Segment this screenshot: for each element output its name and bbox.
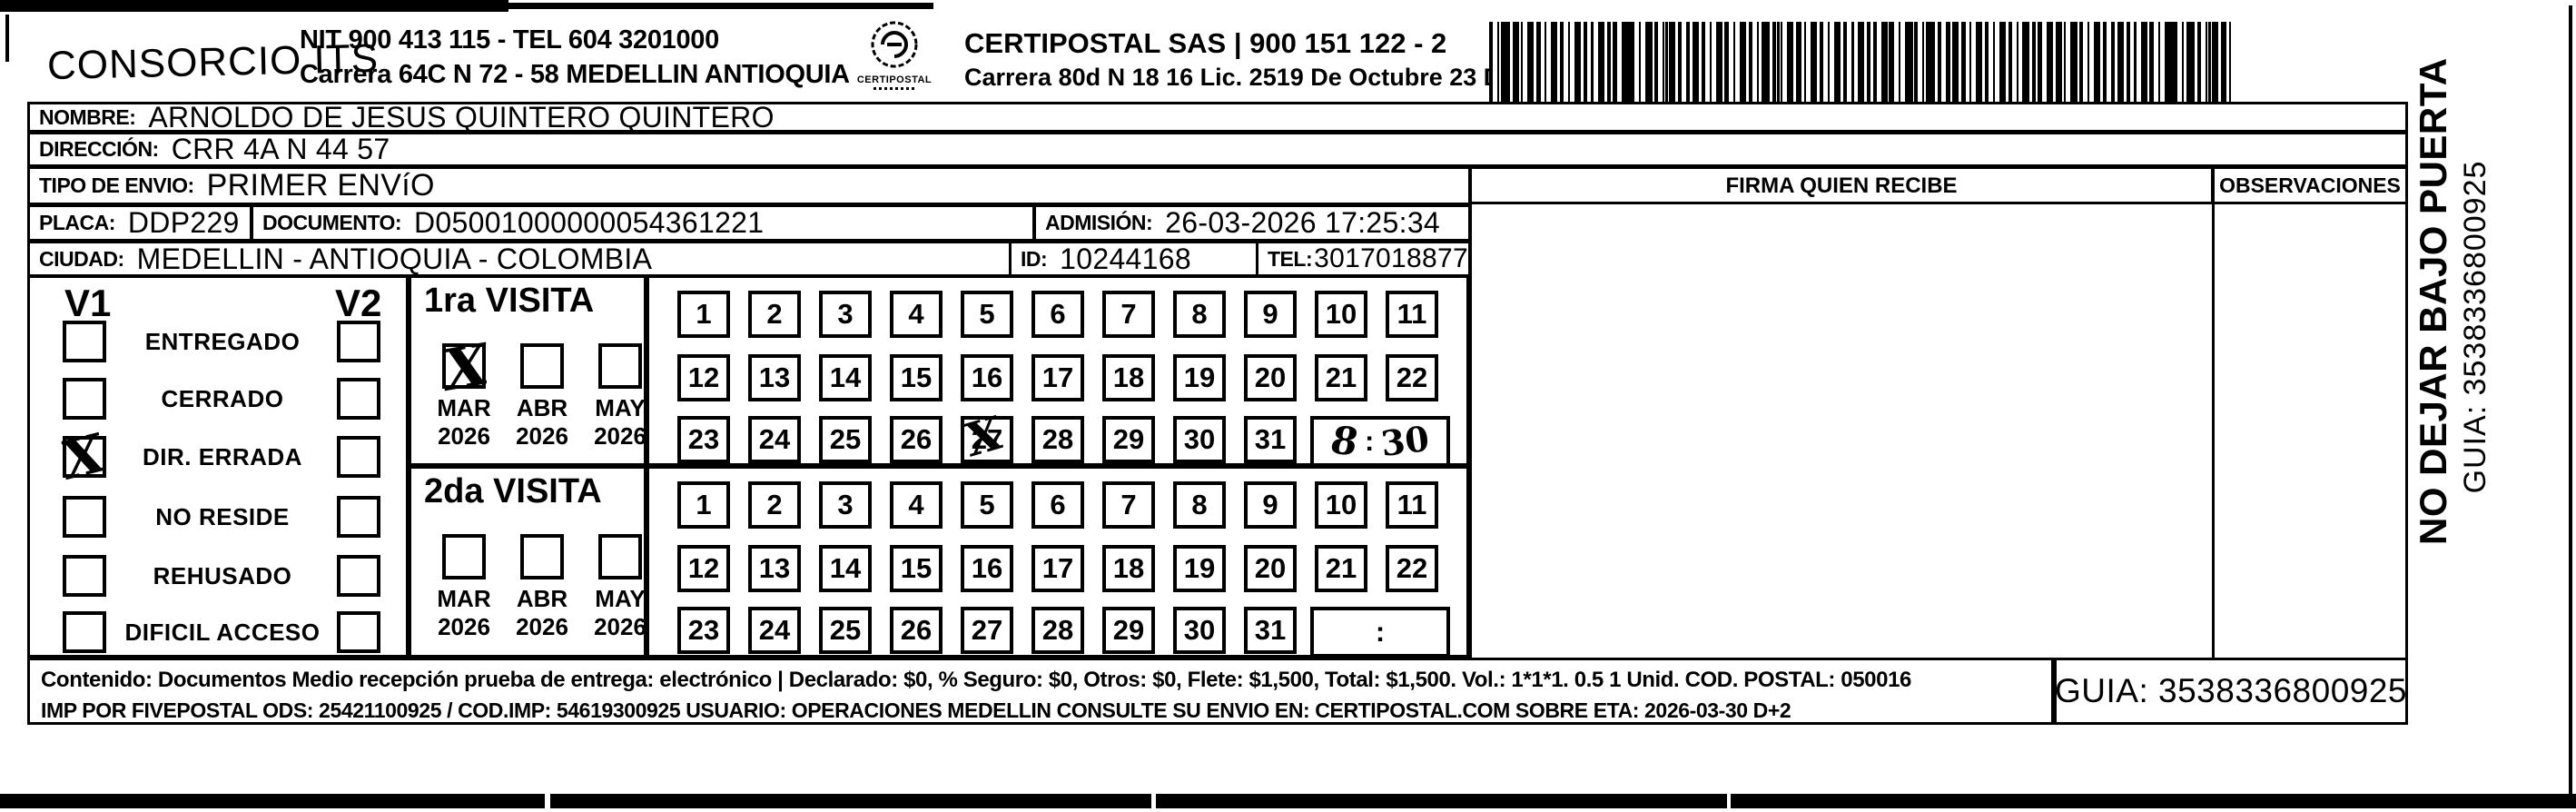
day-cell: 21	[1315, 354, 1367, 401]
logo-tagline-decoration	[873, 87, 915, 90]
visit1-calendar: 8 : 30 123456789101112131415161718192021…	[646, 275, 1469, 466]
day-cell: 7	[1102, 481, 1155, 529]
handwritten-minutes: 30	[1379, 421, 1431, 461]
visit1-title: 1ra VISITA	[424, 282, 594, 321]
v2-checkbox	[337, 378, 380, 420]
id-value: 10244168	[1060, 243, 1191, 276]
day-cell: 30	[1173, 416, 1226, 463]
admision-value: 26-03-2026 17:25:34	[1165, 206, 1440, 240]
day-cell: 8	[1173, 291, 1226, 338]
scan-artifact-gap	[1151, 794, 1156, 808]
day-cell: 17	[1031, 354, 1084, 401]
day-cell: 18	[1102, 545, 1155, 592]
day-cell: 2	[748, 291, 801, 338]
time-colon: :	[1365, 425, 1374, 458]
observaciones-header-cell: OBSERVACIONES	[2212, 166, 2408, 205]
day-cell: 12	[677, 354, 730, 401]
day-cell: 12	[677, 545, 730, 592]
ciudad-label: CIUDAD:	[39, 247, 124, 272]
month-label: ABR	[504, 585, 580, 613]
v1-checkbox	[63, 378, 106, 420]
month-checkbox	[442, 534, 486, 579]
operator-address: Carrera 80d N 18 16 Lic. 2519 De Octubre…	[964, 64, 1576, 92]
day-cell: 26	[890, 416, 943, 463]
month-label: ABR	[504, 394, 580, 422]
day-cell: 29	[1102, 416, 1155, 463]
day-cell: 22	[1386, 354, 1438, 401]
day-cell: 3	[819, 481, 872, 529]
scan-artifact-top-strip	[507, 3, 933, 9]
day-cell: 9	[1244, 291, 1297, 338]
month-checkbox	[598, 534, 642, 579]
footer-import-line: IMP POR FIVEPOSTAL ODS: 25421100925 / CO…	[41, 698, 1791, 723]
logo-caption: CERTIPOSTAL	[855, 74, 933, 85]
id-cell: ID: 10244168	[1009, 241, 1258, 277]
status-row: NO RESIDE	[30, 496, 406, 541]
side-note: NO DEJAR BAJO PUERTA GUIA: 3538336800925	[2412, 109, 2493, 545]
month-checkbox	[598, 343, 642, 389]
status-label: DIFICIL ACCESO	[114, 619, 331, 647]
visit-month: ABR2026	[504, 343, 580, 451]
day-cell: 22	[1386, 545, 1438, 592]
scan-artifact-bottom-bar	[0, 794, 2576, 808]
day-cell: 30	[1173, 607, 1226, 654]
ciudad-value: MEDELLIN - ANTIOQUIA - COLOMBIA	[137, 243, 653, 276]
scan-artifact-gap	[545, 794, 550, 808]
v2-checkbox	[337, 321, 380, 362]
visit2-time-box: :	[1310, 607, 1450, 658]
v1-checkbox	[63, 555, 106, 597]
operator-name: CERTIPOSTAL SAS | 900 151 122 - 2	[964, 27, 1446, 60]
day-cell: 23	[677, 607, 730, 654]
status-label: NO RESIDE	[114, 503, 331, 531]
visit-month: ABR2026	[504, 534, 580, 641]
direccion-label: DIRECCIÓN:	[39, 137, 159, 162]
day-cell: 1	[677, 291, 730, 338]
side-note-guia: GUIA: 3538336800925	[2458, 109, 2493, 545]
direccion-row: DIRECCIÓN: CRR 4A N 44 57	[27, 132, 2408, 167]
visit2-months-panel: 2da VISITA MAR2026ABR2026MAY2026	[409, 466, 646, 658]
v1-checkbox	[63, 611, 106, 653]
direccion-value: CRR 4A N 44 57	[172, 133, 390, 166]
tipo-envio-cell: TIPO DE ENVIO: PRIMER ENVíO	[27, 166, 1471, 205]
visit1-time-box: 8 : 30	[1310, 416, 1450, 467]
day-cell: 4	[890, 291, 943, 338]
day-cell: 10	[1315, 291, 1367, 338]
scan-artifact-right-edge	[2569, 5, 2572, 805]
day-cell: 6	[1031, 481, 1084, 529]
day-cell: 20	[1244, 545, 1297, 592]
v1-checkbox: X	[63, 436, 106, 478]
nombre-value: ARNOLDO DE JESUS QUINTERO QUINTERO	[148, 101, 774, 134]
month-checkbox	[520, 343, 564, 389]
tel-value: 3017018877	[1314, 243, 1468, 274]
v2-column-header: V2	[335, 282, 381, 325]
day-cell: 18	[1102, 354, 1155, 401]
scan-artifact-top-strip	[0, 0, 508, 12]
month-year: 2026	[426, 613, 502, 641]
handwritten-x-mark: X	[61, 425, 106, 488]
day-cell: 8	[1173, 481, 1226, 529]
day-cell: 13	[748, 545, 801, 592]
month-checkbox	[520, 534, 564, 579]
day-cell: 16	[961, 354, 1013, 401]
day-cell: 2	[748, 481, 801, 529]
day-cell: 11	[1386, 481, 1438, 529]
nombre-label: NOMBRE:	[39, 105, 135, 130]
v1-column-header: V1	[64, 282, 111, 325]
admision-label: ADMISIÓN:	[1045, 211, 1152, 235]
firma-body	[1469, 202, 2408, 660]
status-label: CERRADO	[114, 385, 331, 413]
nombre-row: NOMBRE: ARNOLDO DE JESUS QUINTERO QUINTE…	[27, 102, 2408, 133]
v2-checkbox	[337, 611, 380, 653]
v2-checkbox	[337, 555, 380, 597]
handwritten-hour: 8	[1327, 421, 1361, 461]
status-row: DIFICIL ACCESO	[30, 611, 406, 657]
month-year: 2026	[504, 613, 580, 641]
side-note-warning: NO DEJAR BAJO PUERTA	[2412, 109, 2455, 545]
placa-cell: PLACA: DDP229	[27, 204, 252, 242]
status-row: REHUSADO	[30, 555, 406, 600]
day-cell: 27	[961, 607, 1013, 654]
day-cell: 11	[1386, 291, 1438, 338]
status-row: ENTREGADO	[30, 321, 406, 366]
documento-label: DOCUMENTO:	[262, 211, 401, 235]
day-cell: 20	[1244, 354, 1297, 401]
v2-checkbox	[337, 436, 380, 478]
day-cell: 1	[677, 481, 730, 529]
id-label: ID:	[1021, 247, 1047, 272]
ciudad-cell: CIUDAD: MEDELLIN - ANTIOQUIA - COLOMBIA	[27, 241, 1012, 277]
admision-cell: ADMISIÓN: 26-03-2026 17:25:34	[1033, 204, 1471, 242]
visit2-calendar: : 12345678910111213141516171819202122232…	[646, 466, 1469, 658]
handwritten-x-mark: X	[962, 410, 1004, 464]
day-cell: 28	[1031, 416, 1084, 463]
day-cell: 24	[748, 416, 801, 463]
day-cell: 5	[961, 291, 1013, 338]
observaciones-header: OBSERVACIONES	[2219, 173, 2401, 198]
certipostal-logo: CERTIPOSTAL	[855, 20, 933, 90]
month-checkbox: X	[442, 343, 486, 389]
day-cell: 25	[819, 607, 872, 654]
day-cell: 3	[819, 291, 872, 338]
status-label: DIR. ERRADA	[114, 443, 331, 471]
day-cell: 17	[1031, 545, 1084, 592]
day-cell: 13	[748, 354, 801, 401]
v1-checkbox	[63, 496, 106, 538]
company-address: Carrera 64C N 72 - 58 MEDELLIN ANTIOQUIA	[300, 60, 850, 90]
day-cell: 9	[1244, 481, 1297, 529]
placa-value: DDP229	[128, 206, 240, 240]
documento-cell: DOCUMENTO: D05001000000054361221	[251, 204, 1035, 242]
firma-header-cell: FIRMA QUIEN RECIBE	[1469, 166, 2214, 205]
v2-checkbox	[337, 496, 380, 538]
day-cell: 7	[1102, 291, 1155, 338]
handwritten-x-mark: X	[443, 335, 489, 401]
guia-cell: GUIA: 3538336800925	[2054, 658, 2408, 725]
day-cell: 14	[819, 545, 872, 592]
day-cell: 15	[890, 545, 943, 592]
visit2-title: 2da VISITA	[424, 472, 602, 511]
day-cell: 27X	[961, 416, 1013, 463]
guia-number: GUIA: 3538336800925	[2055, 672, 2407, 710]
day-cell: 4	[890, 481, 943, 529]
month-label: MAR	[426, 585, 502, 613]
observaciones-divider	[2212, 204, 2215, 658]
day-cell: 25	[819, 416, 872, 463]
day-cell: 31	[1244, 607, 1297, 654]
status-label: ENTREGADO	[114, 328, 331, 356]
day-cell: 28	[1031, 607, 1084, 654]
visit-month: XMAR2026	[426, 343, 502, 451]
day-cell: 19	[1173, 545, 1226, 592]
tracking-barcode	[1489, 22, 2234, 105]
month-year: 2026	[426, 422, 502, 451]
month-year: 2026	[504, 422, 580, 451]
time-colon: :	[1376, 616, 1385, 649]
visit-month: MAR2026	[426, 534, 502, 641]
day-cell: 31	[1244, 416, 1297, 463]
visit1-months-panel: 1ra VISITA XMAR2026ABR2026MAY2026	[409, 275, 646, 466]
day-cell: 5	[961, 481, 1013, 529]
day-cell: 10	[1315, 481, 1367, 529]
status-panel: V1 V2 ENTREGADOCERRADOXDIR. ERRADANO RES…	[27, 275, 409, 658]
certipostal-stamp-icon	[870, 20, 919, 69]
v1-checkbox	[63, 321, 106, 362]
scan-artifact-gap	[1727, 794, 1731, 808]
day-cell: 29	[1102, 607, 1155, 654]
footer-content-line: Contenido: Documentos Medio recepción pr…	[41, 668, 1911, 693]
day-cell: 14	[819, 354, 872, 401]
status-label: REHUSADO	[114, 562, 331, 590]
day-cell: 19	[1173, 354, 1226, 401]
status-row: CERRADO	[30, 378, 406, 423]
tel-label: TEL:	[1268, 247, 1312, 272]
day-cell: 16	[961, 545, 1013, 592]
day-cell: 15	[890, 354, 943, 401]
tipo-envio-value: PRIMER ENVíO	[207, 168, 435, 203]
footer-info-cell: Contenido: Documentos Medio recepción pr…	[27, 658, 2054, 725]
day-cell: 21	[1315, 545, 1367, 592]
company-nit: NIT 900 413 115 - TEL 604 3201000	[300, 25, 719, 55]
tel-cell: TEL: 3017018877	[1256, 241, 1471, 277]
day-cell: 6	[1031, 291, 1084, 338]
placa-label: PLACA:	[39, 211, 115, 235]
tipo-envio-label: TIPO DE ENVIO:	[39, 173, 194, 198]
status-row: XDIR. ERRADA	[30, 436, 406, 481]
documento-value: D05001000000054361221	[414, 206, 764, 240]
delivery-form-scan: CONSORCIO ITS NIT 900 413 115 - TEL 604 …	[0, 0, 2576, 812]
firma-header: FIRMA QUIEN RECIBE	[1725, 173, 1957, 199]
day-cell: 24	[748, 607, 801, 654]
day-cell: 26	[890, 607, 943, 654]
day-cell: 23	[677, 416, 730, 463]
scan-artifact-left-tick	[5, 15, 9, 62]
